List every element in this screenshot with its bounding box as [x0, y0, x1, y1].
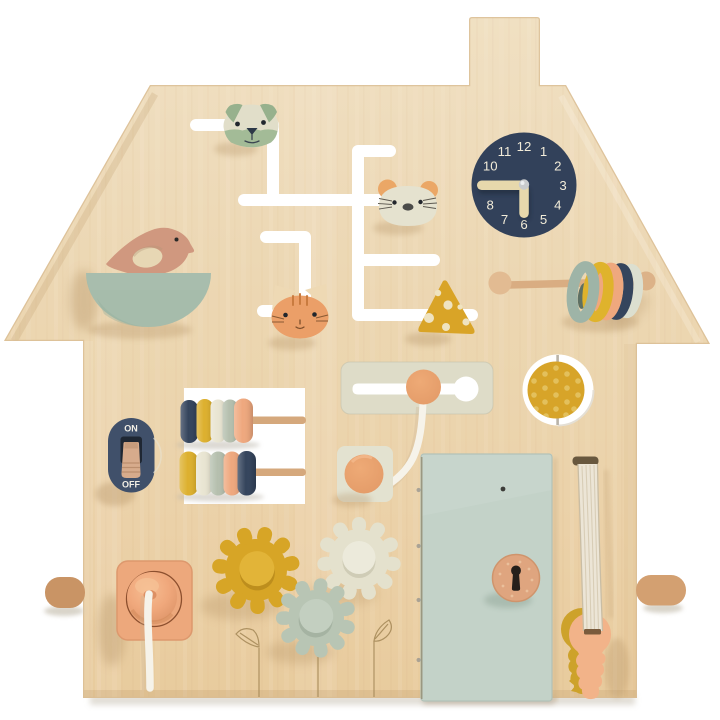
svg-text:OFF: OFF — [122, 480, 140, 490]
svg-text:3: 3 — [559, 178, 566, 193]
svg-text:2: 2 — [554, 159, 561, 174]
svg-text:11: 11 — [498, 144, 512, 159]
svg-text:8: 8 — [487, 198, 494, 213]
svg-text:1: 1 — [540, 144, 547, 159]
svg-text:7: 7 — [501, 212, 508, 227]
svg-text:12: 12 — [517, 139, 532, 154]
svg-text:5: 5 — [540, 212, 547, 227]
svg-text:4: 4 — [554, 198, 561, 213]
svg-text:10: 10 — [483, 159, 498, 174]
svg-text:ON: ON — [124, 424, 138, 434]
